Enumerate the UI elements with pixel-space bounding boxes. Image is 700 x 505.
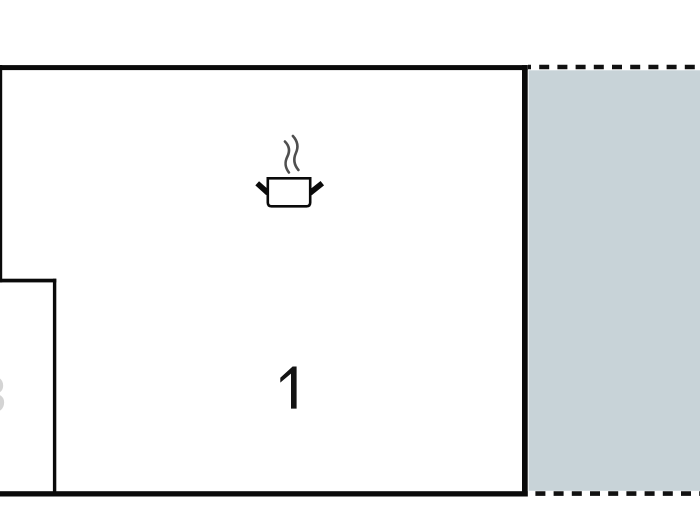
svg-text:3: 3	[0, 366, 6, 423]
